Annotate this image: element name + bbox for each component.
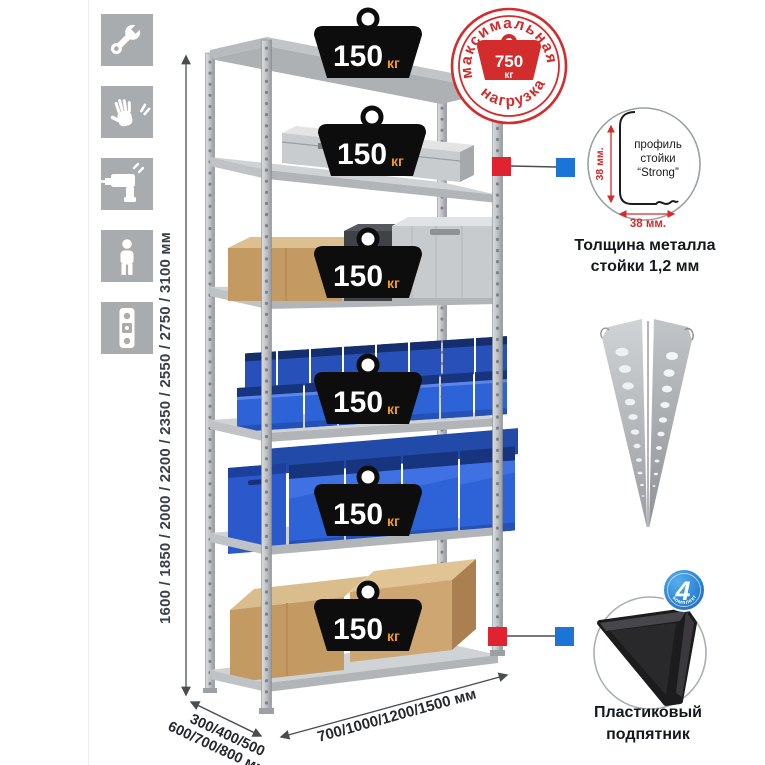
load-value: 150 <box>333 40 383 73</box>
height-label: 1600 / 1850 / 2000 / 2200 / 2350 / 2550 … <box>157 232 174 624</box>
card-edge-line <box>88 0 89 765</box>
height-dimension: 1600 / 1850 / 2000 / 2200 / 2350 / 2550 … <box>157 56 186 695</box>
infographic-canvas: 1600 / 1850 / 2000 / 2200 / 2350 / 2550 … <box>0 0 765 765</box>
blue-marker-top <box>556 158 575 177</box>
profile-label-3: “Strong” <box>637 167 679 179</box>
profile-label-1: профиль <box>634 139 682 151</box>
width-label: 700/1000/1200/1500 мм <box>316 686 479 746</box>
feature-icons-column <box>100 14 153 354</box>
svg-text:кг: кг <box>387 628 400 644</box>
weight-badge: 150 кг <box>314 10 422 78</box>
svg-text:150: 150 <box>333 386 383 419</box>
person-icon <box>101 230 153 282</box>
svg-text:150: 150 <box>333 260 383 293</box>
load-unit: кг <box>387 55 400 71</box>
svg-text:кг: кг <box>391 153 404 169</box>
svg-text:кг: кг <box>387 401 400 417</box>
gloves-icon <box>101 86 153 138</box>
plastic-foot-circle <box>594 597 706 709</box>
profile-label-2: стойки <box>640 153 675 165</box>
profile-caption-2: стойки 1,2 мм <box>591 258 700 275</box>
svg-text:150: 150 <box>337 138 387 171</box>
kit-count-badge: 4 в комплекте <box>663 569 705 611</box>
foot-caption-1: Пластиковый <box>594 704 702 721</box>
max-load-stamp: максимальная нагрузка 750 кг <box>450 7 567 123</box>
drill-icon <box>100 158 153 210</box>
weight-badge: 150 кг <box>318 108 426 176</box>
foot-caption-2: подпятник <box>606 726 691 743</box>
svg-text:кг: кг <box>387 513 400 529</box>
stamp-value: 750 <box>495 52 523 71</box>
level-icon <box>101 302 153 354</box>
stamp-unit: кг <box>504 70 513 81</box>
red-marker-bottom <box>488 627 507 646</box>
wrench-icon <box>101 14 153 66</box>
profile-caption-1: Толщина металла <box>574 237 715 254</box>
svg-text:кг: кг <box>387 275 400 291</box>
profile-detail-circle: 38 мм. 38 мм. профиль стойки “Strong” <box>588 108 700 230</box>
blue-marker-bottom <box>555 627 574 646</box>
depth-dimension: 300/400/500 600/700/800 мм <box>165 702 275 765</box>
corner-post-illustration <box>601 319 693 528</box>
red-marker-top <box>492 157 511 176</box>
svg-text:150: 150 <box>333 498 383 531</box>
profile-dim-vertical: 38 мм. <box>594 147 606 180</box>
shelf-load-weights: 150 кг 150 кг 150 кг 150 кг 150 кг 150 к… <box>314 10 426 651</box>
profile-dim-horizontal: 38 мм. <box>630 218 666 230</box>
rack-infographic: 1600 / 1850 / 2000 / 2200 / 2350 / 2550 … <box>0 0 765 765</box>
svg-text:150: 150 <box>333 613 383 646</box>
